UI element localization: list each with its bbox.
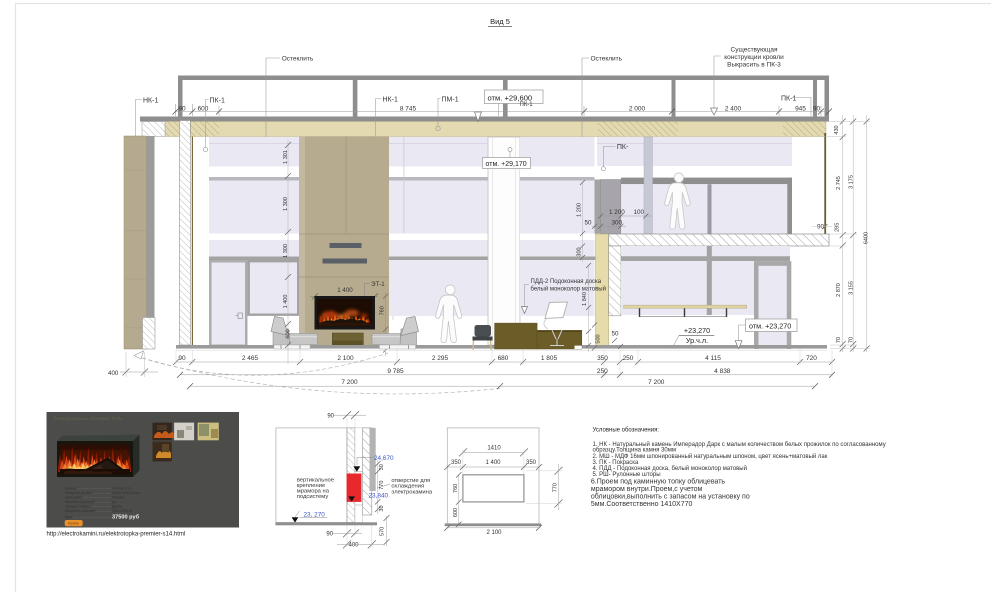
svg-text:ПДД-2 Подоконная доска: ПДД-2 Подоконная доска <box>531 279 602 285</box>
svg-text:отм. +23,270: отм. +23,270 <box>749 322 791 331</box>
svg-text:285: 285 <box>835 223 841 232</box>
svg-text:3 155: 3 155 <box>849 281 855 295</box>
svg-text:24,670: 24,670 <box>374 455 394 462</box>
svg-text:ПК-: ПК- <box>617 144 629 151</box>
svg-text:подсистему: подсистему <box>297 494 329 500</box>
svg-text:100: 100 <box>634 209 645 216</box>
svg-text:1 300: 1 300 <box>283 244 289 258</box>
svg-text:430: 430 <box>834 125 840 134</box>
svg-text:конструкции кровли: конструкции кровли <box>724 54 784 61</box>
svg-text:Купить: Купить <box>68 522 79 526</box>
svg-text:250: 250 <box>623 355 634 362</box>
svg-text:Цвет рамки: Цвет рамки <box>65 496 83 500</box>
svg-text:6400: 6400 <box>864 232 870 244</box>
svg-text:Вид 5: Вид 5 <box>490 17 510 26</box>
svg-text:30: 30 <box>379 505 385 511</box>
svg-text:1 805: 1 805 <box>541 355 558 362</box>
svg-text:Мощность обогрева: Мощность обогрева <box>65 509 97 513</box>
svg-text:30: 30 <box>379 464 385 470</box>
svg-text:400: 400 <box>348 543 359 549</box>
svg-text:ПК-1: ПК-1 <box>781 96 796 103</box>
svg-text:90: 90 <box>178 355 186 362</box>
svg-text:мрамором внутри.Проем,с учетом: мрамором внутри.Проем,с учетом <box>591 486 703 493</box>
svg-text:760: 760 <box>380 306 386 315</box>
svg-text:1 300: 1 300 <box>283 197 289 211</box>
svg-text:350: 350 <box>451 460 462 466</box>
svg-text:90: 90 <box>813 105 821 112</box>
svg-text:300: 300 <box>577 247 583 256</box>
svg-text:23,840: 23,840 <box>369 493 389 500</box>
svg-text:Условные обозначения:: Условные обозначения: <box>593 428 660 434</box>
svg-text:Артикул: Артикул <box>65 487 78 491</box>
svg-text:70: 70 <box>836 337 842 343</box>
svg-text:2 465: 2 465 <box>242 355 259 362</box>
svg-text:2 100: 2 100 <box>337 355 354 362</box>
svg-text:1 200: 1 200 <box>577 203 583 217</box>
svg-text:680: 680 <box>498 355 509 362</box>
svg-text:1 400: 1 400 <box>485 460 501 466</box>
svg-text:7 200: 7 200 <box>341 379 358 386</box>
svg-text:50: 50 <box>612 331 620 338</box>
svg-text:электрокамина: электрокамина <box>391 489 432 495</box>
svg-text:90: 90 <box>326 532 333 538</box>
svg-text:Остеклить: Остеклить <box>591 56 623 63</box>
svg-text:отм. +29,170: отм. +29,170 <box>486 161 527 168</box>
svg-text:70: 70 <box>849 337 855 343</box>
svg-text:8 745: 8 745 <box>400 105 417 112</box>
svg-text:ЭТ-1: ЭТ-1 <box>371 281 385 288</box>
svg-text:ПК-1: ПК-1 <box>210 98 225 105</box>
svg-text:Наличие пульта ДУ: Наличие пульта ДУ <box>65 500 96 504</box>
svg-text:770: 770 <box>553 483 559 492</box>
svg-text:90: 90 <box>327 413 334 419</box>
svg-text:2 400: 2 400 <box>725 105 742 112</box>
svg-text:770: 770 <box>379 481 385 490</box>
svg-text:9 785: 9 785 <box>387 368 404 375</box>
svg-text:6.Проем под каминную топку обл: 6.Проем под каминную топку облицевать <box>591 478 726 486</box>
svg-text:350: 350 <box>597 355 608 362</box>
svg-text:2. МШ - МДФ 16мм шпонированный: 2. МШ - МДФ 16мм шпонированный натуральн… <box>593 453 828 460</box>
svg-text:500: 500 <box>596 334 602 343</box>
svg-text:4 115: 4 115 <box>705 355 721 362</box>
svg-text:5мм.Соответственно 1410Х770: 5мм.Соответственно 1410Х770 <box>591 501 693 508</box>
svg-text:600: 600 <box>198 105 209 112</box>
svg-text:Premier S14: Premier S14 <box>112 487 131 491</box>
svg-text:90: 90 <box>178 105 186 112</box>
svg-text:образцу.Толщина камня 30мм: образцу.Толщина камня 30мм <box>593 448 677 454</box>
svg-text:720: 720 <box>806 355 817 362</box>
svg-text:50: 50 <box>585 220 593 227</box>
svg-text:300: 300 <box>612 220 623 227</box>
svg-text:Да: Да <box>112 500 116 504</box>
svg-text:400: 400 <box>108 370 119 377</box>
svg-text:1000-2000 Вт: 1000-2000 Вт <box>112 509 133 513</box>
svg-text:+23,270: +23,270 <box>684 326 710 335</box>
svg-text:Ур.ч.л.: Ур.ч.л. <box>686 336 708 345</box>
svg-text:600: 600 <box>453 508 459 517</box>
svg-text:2 870: 2 870 <box>836 283 842 297</box>
svg-text:570: 570 <box>380 527 386 536</box>
svg-text:1410: 1410 <box>487 445 501 451</box>
svg-text:http://electrokamini.ru/elektr: http://electrokamini.ru/elektrotopka-pre… <box>47 532 186 538</box>
svg-text:3 175: 3 175 <box>849 175 855 189</box>
svg-text:ПК-1: ПК-1 <box>520 102 534 108</box>
svg-text:НК-1: НК-1 <box>143 98 158 105</box>
svg-text:1 400: 1 400 <box>283 295 289 309</box>
svg-text:Электротопка «Premier S14»: Электротопка «Premier S14» <box>53 416 123 422</box>
svg-text:4 838: 4 838 <box>714 368 731 375</box>
svg-text:1 400: 1 400 <box>337 287 353 294</box>
svg-text:Габариты (ВхШхГ): Габариты (ВхШхГ) <box>65 491 94 495</box>
svg-text:белый моноколор матовый: белый моноколор матовый <box>531 286 606 293</box>
svg-text:600: 600 <box>286 329 292 338</box>
svg-text:760: 760 <box>453 484 459 493</box>
svg-text:250: 250 <box>597 368 608 375</box>
svg-text:2 100: 2 100 <box>486 530 502 536</box>
svg-text:2 745: 2 745 <box>836 176 842 190</box>
svg-text:1 301: 1 301 <box>283 150 289 164</box>
svg-text:1 200: 1 200 <box>609 209 625 216</box>
svg-text:Цена: Цена <box>65 515 73 519</box>
svg-text:90: 90 <box>817 224 825 231</box>
svg-text:4. ПДД - Подоконная доска, бе: 4. ПДД - Подоконная доска, белый монокол… <box>593 465 747 472</box>
svg-text:1 840: 1 840 <box>582 292 588 306</box>
svg-text:945: 945 <box>795 105 806 112</box>
svg-text:350: 350 <box>526 460 537 466</box>
svg-text:1100х760х310 мм: 1100х760х310 мм <box>112 491 140 495</box>
svg-text:2 000: 2 000 <box>629 105 646 112</box>
svg-text:Существующая: Существующая <box>731 47 778 54</box>
svg-text:37500 руб: 37500 руб <box>112 514 140 521</box>
svg-text:облицовки,выполнить с запасом: облицовки,выполнить с запасом на установ… <box>591 493 750 501</box>
svg-text:Черный: Черный <box>112 496 124 500</box>
svg-text:2 295: 2 295 <box>432 355 449 362</box>
svg-text:Выкрасить в ПК-3: Выкрасить в ПК-3 <box>727 62 781 69</box>
svg-text:Остеклить: Остеклить <box>282 56 314 63</box>
svg-text:Эффект пламени: Эффект пламени <box>65 505 93 509</box>
svg-text:7 200: 7 200 <box>648 379 665 386</box>
svg-text:НК-1: НК-1 <box>383 97 398 104</box>
svg-text:Дрова: Дрова <box>112 505 122 509</box>
svg-text:ПМ-1: ПМ-1 <box>442 97 459 104</box>
svg-text:5. РШ- Рулонные шторы: 5. РШ- Рулонные шторы <box>593 472 661 478</box>
